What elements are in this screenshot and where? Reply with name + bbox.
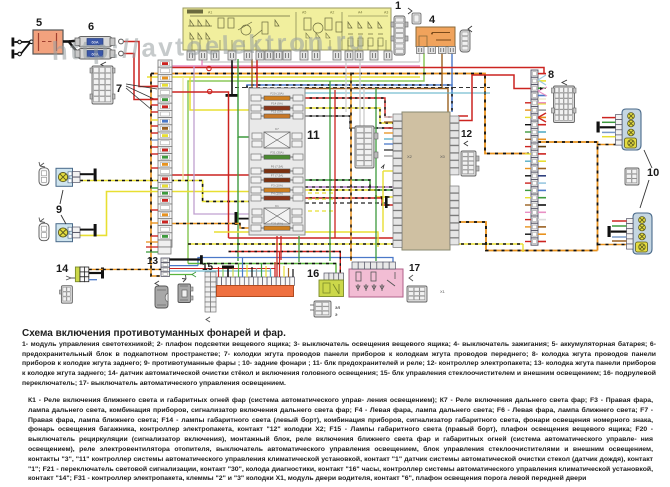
svg-text:X2: X2: [407, 154, 413, 159]
svg-text:K7: K7: [275, 127, 279, 131]
svg-text:F4 (10A): F4 (10A): [271, 192, 283, 196]
svg-text:F15 (5A): F15 (5A): [271, 110, 283, 114]
svg-text:8: 8: [548, 69, 554, 81]
svg-text:F21 (5A): F21 (5A): [271, 222, 283, 226]
svg-text:A3: A3: [384, 11, 388, 15]
svg-text:12: 12: [461, 129, 473, 140]
svg-text:1: 1: [395, 0, 401, 12]
svg-text:A4: A4: [358, 11, 362, 15]
svg-text:A1: A1: [208, 11, 212, 15]
svg-text:A2: A2: [330, 11, 334, 15]
svg-text:F7 (7,5A): F7 (7,5A): [271, 174, 284, 178]
svg-text:7: 7: [116, 83, 122, 95]
svg-text:F31 (30A): F31 (30A): [270, 151, 283, 155]
svg-text:4: 4: [429, 14, 436, 26]
svg-text:F14 (9A): F14 (9A): [271, 102, 283, 106]
svg-text:9: 9: [56, 204, 62, 216]
svg-text:15: 15: [202, 262, 214, 273]
svg-text:6: 6: [88, 21, 94, 33]
svg-text:эл: эл: [335, 305, 340, 310]
svg-text:11: 11: [307, 128, 320, 142]
svg-text:K1: K1: [275, 204, 279, 208]
svg-text:F20 (10A): F20 (10A): [270, 92, 283, 96]
svg-text:X0: X0: [440, 154, 446, 159]
svg-text:F3 (10A): F3 (10A): [271, 184, 283, 188]
svg-text:10: 10: [647, 167, 659, 179]
svg-text:13: 13: [147, 256, 159, 267]
svg-text:A5: A5: [302, 11, 306, 15]
svg-text:5: 5: [36, 17, 42, 29]
svg-text:X1: X1: [440, 289, 446, 294]
svg-text:14: 14: [56, 263, 69, 275]
svg-text:17: 17: [409, 263, 421, 274]
svg-text:э: э: [335, 312, 338, 317]
svg-text:16: 16: [307, 268, 319, 280]
svg-text:F6 (7,5A): F6 (7,5A): [271, 165, 284, 169]
